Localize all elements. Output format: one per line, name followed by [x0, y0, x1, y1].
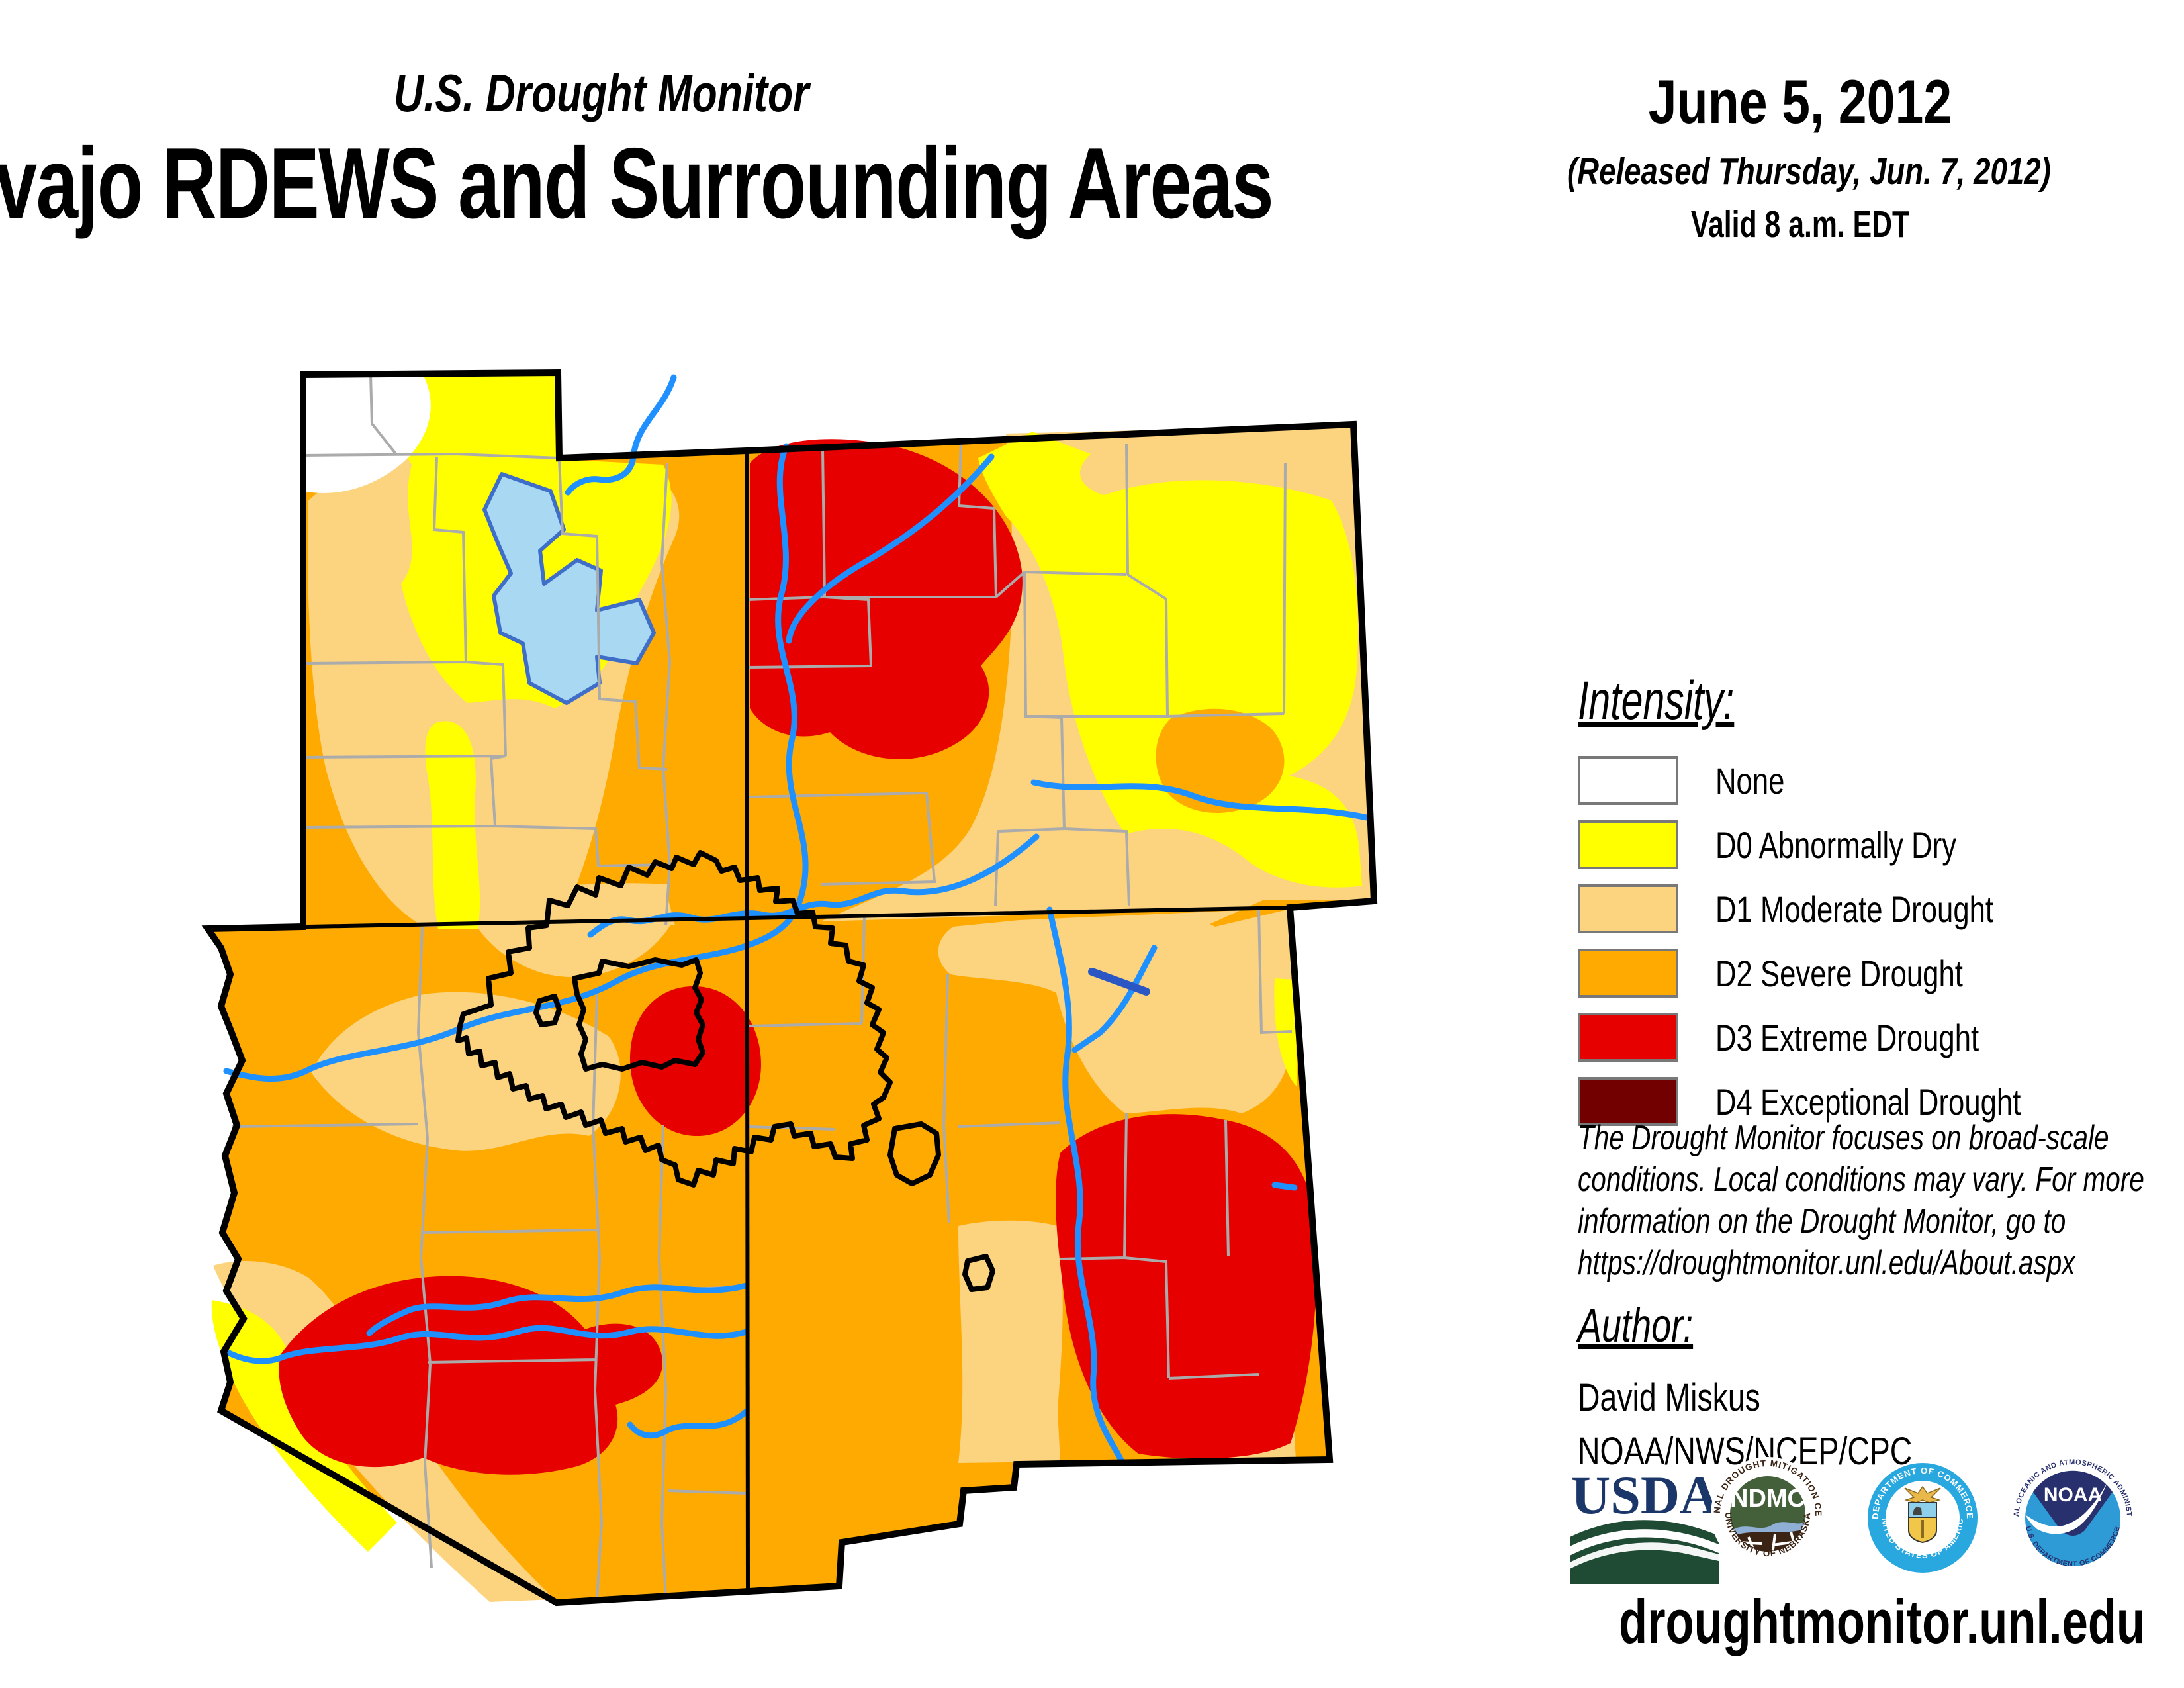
valid-time: Valid 8 a.m. EDT [1582, 203, 2019, 246]
legend-item-label: D1 Moderate Drought [1715, 888, 1993, 931]
legend-item-label: D2 Severe Drought [1715, 952, 1963, 995]
map-date: June 5, 2012 [1561, 66, 2039, 138]
page-title: Navajo RDEWS and Surrounding Areas [0, 126, 1273, 242]
disclaimer-line: information on the Drought Monitor, go t… [1578, 1201, 2144, 1243]
legend-swatch [1578, 884, 1678, 933]
canadian-river [1275, 1185, 1295, 1188]
legend-item: D0 Abnormally Dry [1578, 820, 2107, 869]
legend-item-label: None [1715, 759, 1784, 802]
legend-item: D3 Extreme Drought [1578, 1013, 2107, 1062]
date-block: June 5, 2012 (Released Thursday, Jun. 7,… [1509, 66, 2091, 246]
legend-item: None [1578, 756, 2107, 805]
intensity-legend: Intensity: NoneD0 Abnormally DryD1 Moder… [1578, 670, 2107, 1141]
disclaimer-line: https://droughtmonitor.unl.edu/About.asp… [1578, 1243, 2144, 1284]
usda-logo-text: USDA [1571, 1468, 1719, 1525]
author-name: David Miskus [1578, 1376, 1912, 1420]
legend-items: NoneD0 Abnormally DryD1 Moderate Drought… [1578, 756, 2107, 1126]
ut-co-az-nm-vertical-border [747, 451, 748, 1590]
legend-item-label: D4 Exceptional Drought [1715, 1080, 2021, 1123]
disclaimer-line: conditions. Local conditions may vary. F… [1578, 1159, 2144, 1201]
drought-monitor-report: { "header": { "monitor_title": "U.S. Dro… [0, 0, 2184, 1688]
legend-heading: Intensity: [1578, 670, 1959, 732]
commerce-logo-icon: DEPARTMENT OF COMMERCE UNITED STATES OF … [1866, 1462, 1979, 1574]
legend-swatch [1578, 949, 1678, 998]
noaa-abbr: NOAA [2044, 1484, 2102, 1506]
shield-icon [1909, 1503, 1936, 1542]
legend-swatch [1578, 756, 1678, 805]
legend-swatch [1578, 1013, 1678, 1062]
ndmc-logo-icon: NDMC NATIONAL DROUGHT MITIGATION CENTER … [1709, 1455, 1827, 1573]
usda-logo-icon: USDA [1570, 1468, 1719, 1584]
disclaimer-line: The Drought Monitor focuses on broad-sca… [1578, 1117, 2144, 1159]
site-url: droughtmonitor.unl.edu [1619, 1586, 2145, 1658]
monitor-title: U.S. Drought Monitor [394, 63, 809, 124]
author-block: Author: David Miskus NOAA/NWS/NCEP/CPC [1578, 1299, 1996, 1474]
disclaimer-text: The Drought Monitor focuses on broad-sca… [1578, 1117, 2144, 1284]
legend-item-label: D3 Extreme Drought [1715, 1016, 1979, 1059]
released-date: (Released Thursday, Jun. 7, 2012) [1567, 150, 2033, 193]
legend-swatch [1578, 820, 1678, 869]
ndmc-abbr: NDMC [1730, 1485, 1805, 1513]
legend-item: D2 Severe Drought [1578, 949, 2107, 998]
legend-item-label: D0 Abnormally Dry [1715, 823, 1956, 867]
legend-item: D1 Moderate Drought [1578, 884, 2107, 933]
noaa-logo-icon: NOAA NATIONAL OCEANIC AND ATMOSPHERIC AD… [2008, 1454, 2138, 1583]
author-heading: Author: [1578, 1299, 1891, 1353]
